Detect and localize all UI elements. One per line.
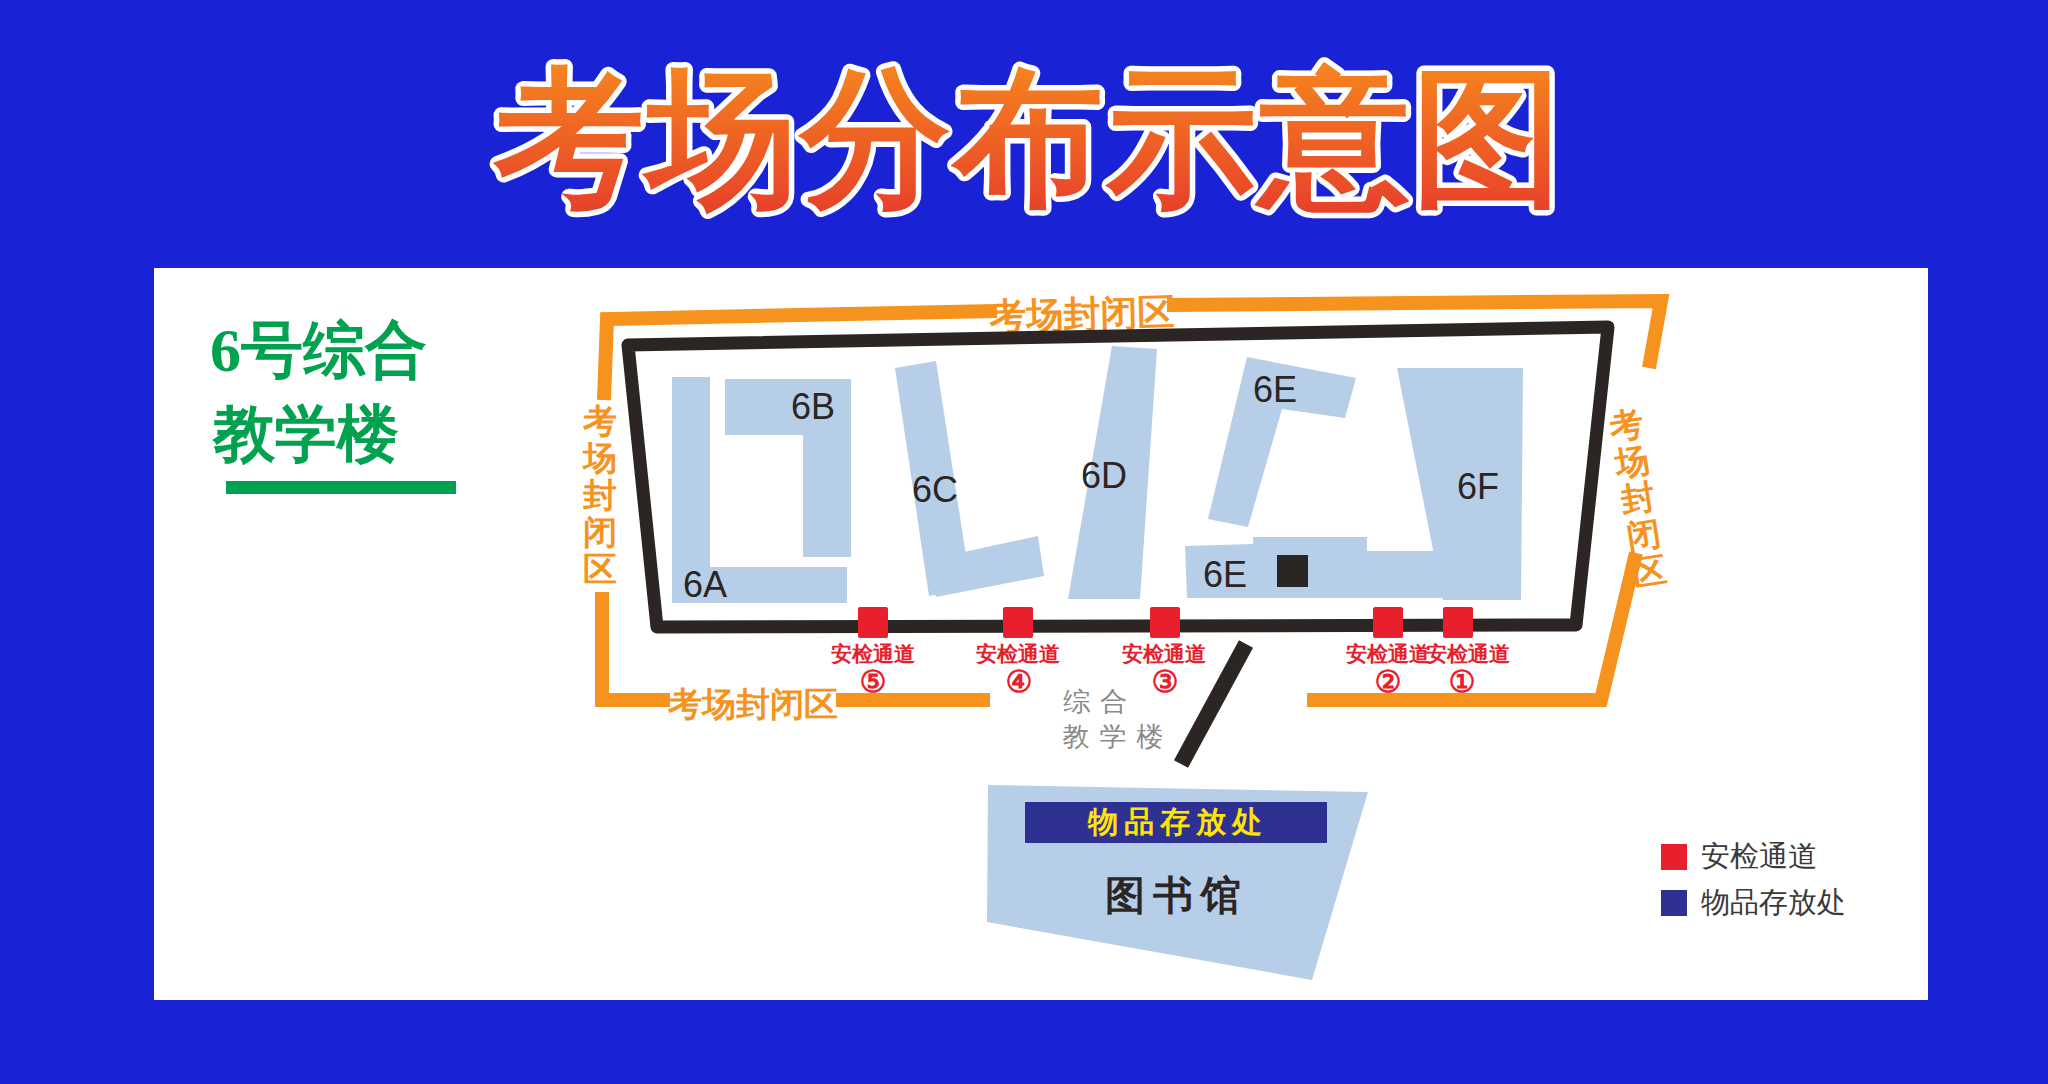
- label-6e-upper: 6E: [1253, 369, 1297, 410]
- legend-label-security-gate: 安检通道: [1701, 840, 1817, 872]
- teaching-building-caption-line1: 综合: [1063, 687, 1137, 717]
- teaching-building-caption-line2: 教学楼: [1063, 722, 1174, 752]
- gate-label-3: 安检通道: [1122, 642, 1207, 665]
- storage-banner-label: 物品存放处: [1087, 805, 1268, 838]
- legend-label-storage: 物品存放处: [1701, 886, 1846, 918]
- gate-number-3: ③: [1152, 665, 1179, 698]
- closed-area-label-right: 考场封闭区: [1605, 404, 1670, 593]
- stairwell-marker-square: [1277, 555, 1308, 587]
- legend-swatch-security-gate: [1661, 844, 1687, 870]
- gate-square-3: [1150, 607, 1180, 638]
- gate-number-1: ①: [1449, 665, 1476, 698]
- legend-swatch-storage: [1661, 890, 1687, 916]
- gate-label-4: 安检通道: [976, 642, 1061, 665]
- label-6c: 6C: [912, 469, 958, 510]
- closed-area-label-bottom: 考场封闭区: [667, 685, 838, 723]
- gate-number-2: ②: [1375, 665, 1402, 698]
- label-6b: 6B: [791, 386, 835, 427]
- exam-map-poster: 考场分布示意图 6号综合 教学楼 考场封闭区 考场封闭区 考场封闭区 考场封闭区…: [0, 0, 2048, 1084]
- gate-square-4: [1003, 607, 1033, 638]
- gate-label-5: 安检通道: [831, 642, 916, 665]
- label-6a: 6A: [683, 564, 727, 605]
- gate-label-2: 安检通道: [1346, 642, 1431, 665]
- gate-label-1: 安检通道: [1426, 642, 1511, 665]
- library-label: 图书馆: [1105, 873, 1249, 917]
- gate-square-1: [1443, 607, 1473, 638]
- label-6e-lower: 6E: [1203, 554, 1247, 595]
- gate-square-5: [858, 607, 888, 638]
- closed-area-label-left: 考场封闭区: [581, 402, 617, 588]
- label-6f: 6F: [1457, 466, 1499, 507]
- gate-square-2: [1373, 607, 1403, 638]
- campus-map: 考场封闭区 考场封闭区 考场封闭区 考场封闭区 6A 6B 6C 6D 6E 6…: [0, 0, 2048, 1084]
- label-6d: 6D: [1081, 455, 1127, 496]
- gate-number-5: ⑤: [860, 665, 887, 698]
- gate-number-4: ④: [1006, 665, 1033, 698]
